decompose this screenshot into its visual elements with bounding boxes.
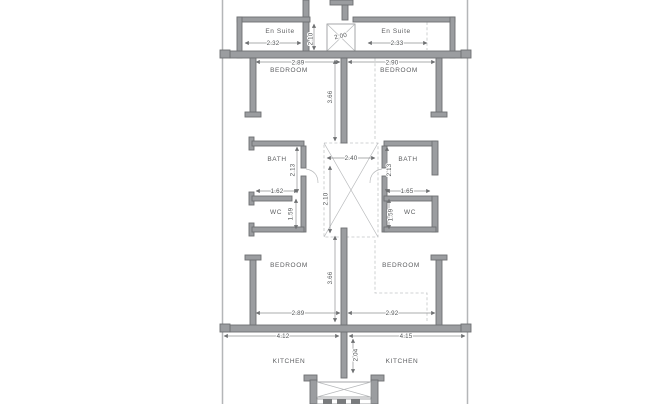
label-kitchen-left: KITCHEN [273,358,306,365]
walls [220,0,471,404]
label-wc-right: WC [404,209,416,216]
dim-wc-left-width: 1.62 [271,188,284,195]
bottom-stair-detail [317,382,371,404]
label-en-suite-left: En Suite [265,28,294,35]
label-bedroom-top-left: BEDROOM [270,67,308,74]
dim-bedroom-bottom-depth: 3.66 [327,271,334,284]
label-en-suite-right: En Suite [381,28,410,35]
label-bedroom-bottom-right: BEDROOM [382,262,420,269]
dim-shaft-width: 2.40 [345,155,358,162]
dim-bedroom-top-left-width: 2.89 [292,59,305,66]
dim-top-shaft-height: 2.10 [308,32,315,45]
dim-bedroom-top-depth: 3.66 [327,90,334,103]
dim-bedroom-bottom-left-width: 2.89 [292,310,305,317]
dim-bath-left-height: 2.13 [290,163,297,176]
dim-shaft-height: 2.10 [323,192,330,205]
dim-kitchen-right-width: 4.15 [400,333,413,340]
dim-bedroom-top-right-width: 2.90 [386,59,399,66]
label-bedroom-bottom-left: BEDROOM [270,262,308,269]
dim-bath-right-height: 2.13 [386,163,393,176]
door-swing-arcs [306,169,382,183]
dim-wc-right-height: 1.59 [388,208,395,221]
label-kitchen-right: KITCHEN [386,358,419,365]
dim-kitchen-depth: 2.04 [353,348,360,361]
dim-wc-left-height: 1.59 [288,207,295,220]
dim-en-suite-right-width: 2.33 [391,40,404,47]
label-wc-left: WC [270,209,282,216]
floor-plan-svg: En Suite En Suite BEDROOM BEDROOM BATH B… [0,0,672,404]
dim-kitchen-left-width: 4.12 [277,333,290,340]
label-bath-right: BATH [398,156,417,163]
label-bath-left: BATH [267,156,286,163]
floor-plan-canvas: En Suite En Suite BEDROOM BEDROOM BATH B… [0,0,672,404]
dim-en-suite-left-width: 2.32 [267,40,280,47]
dim-wc-right-width: 1.65 [401,188,414,195]
dim-bedroom-bottom-right-width: 2.92 [386,310,399,317]
label-bedroom-top-right: BEDROOM [380,67,418,74]
